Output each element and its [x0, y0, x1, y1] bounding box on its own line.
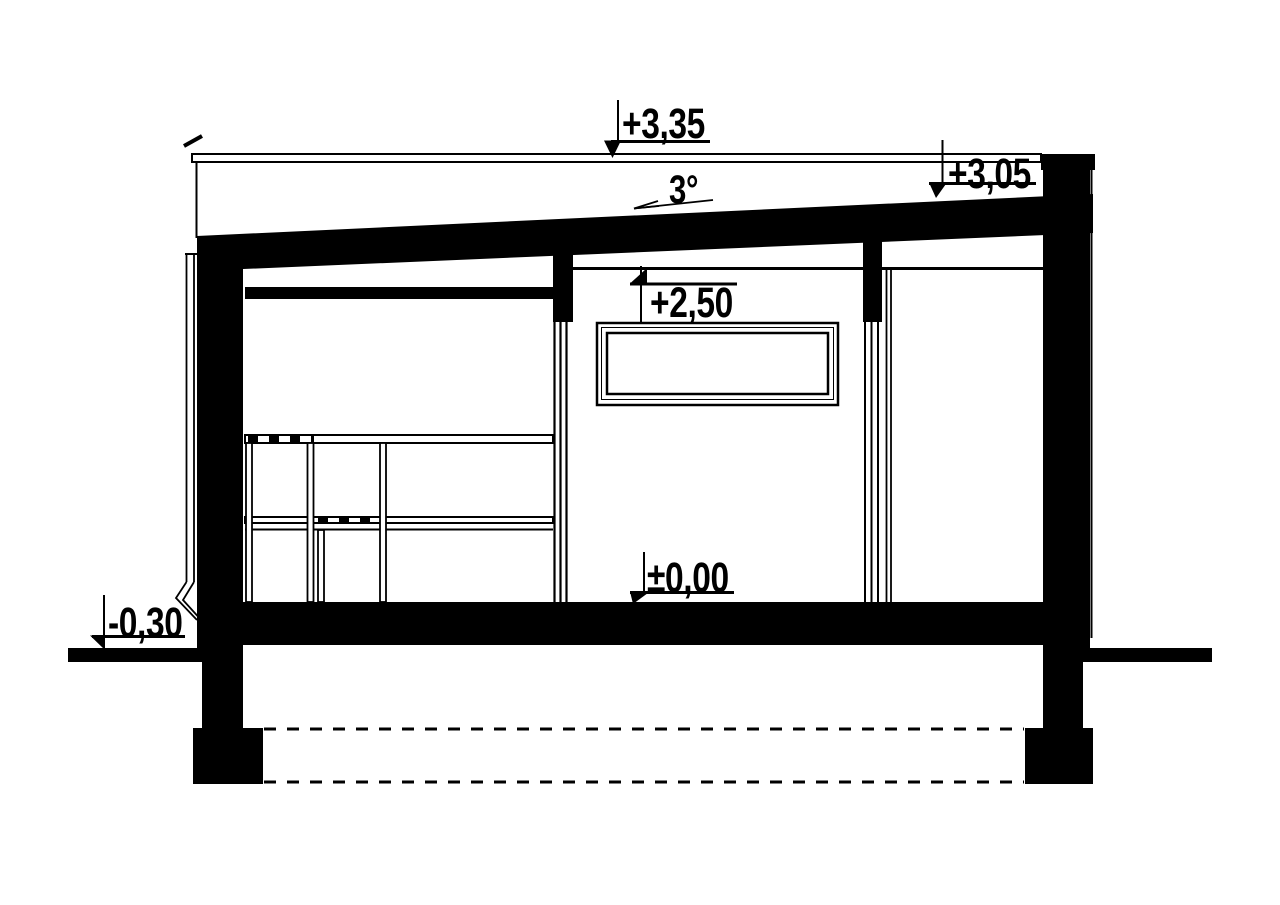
slope-arrow-head — [634, 206, 659, 209]
section-drawing: +3,35 +3,05 3° +2,50 ±0,00 -0,30 — [0, 0, 1280, 905]
right-foundation-wall — [1043, 648, 1083, 730]
left-wall — [197, 238, 243, 662]
level-label-roof-edge: +3,05 — [948, 153, 1031, 196]
window — [597, 323, 838, 405]
floor-slab — [243, 602, 1043, 645]
middle-partition-beam — [553, 248, 573, 322]
marker-triangle — [90, 636, 105, 651]
fascia-band — [192, 154, 1041, 162]
shelf-post — [246, 443, 252, 602]
marker-triangle — [630, 268, 647, 284]
middle-partition-glazing-lines — [555, 322, 567, 602]
terrace-door-beam — [863, 238, 882, 322]
roof-slope-label: 3° — [669, 170, 698, 210]
level-label-ceiling: +2,50 — [650, 282, 733, 325]
window-inner-frame — [607, 333, 828, 394]
left-foundation-wall — [202, 662, 243, 730]
shelf-unit — [245, 435, 553, 602]
shelf-post — [380, 443, 386, 602]
garage-ceiling-band — [245, 287, 553, 299]
ground-line-left — [68, 648, 205, 662]
shelf-post — [318, 530, 324, 602]
ground-line-right — [1083, 648, 1212, 662]
level-label-finished-floor: ±0,00 — [647, 557, 729, 600]
marker-triangle — [929, 183, 947, 199]
level-label-attic-top: +3,35 — [622, 103, 705, 146]
right-footing — [1025, 728, 1093, 784]
shelf-post — [308, 443, 314, 602]
mid-shelf — [245, 517, 553, 523]
flashing-tick — [184, 136, 202, 146]
left-footing — [193, 728, 263, 784]
right-column — [1043, 154, 1090, 648]
level-label-exterior-grade: -0,30 — [108, 602, 183, 645]
